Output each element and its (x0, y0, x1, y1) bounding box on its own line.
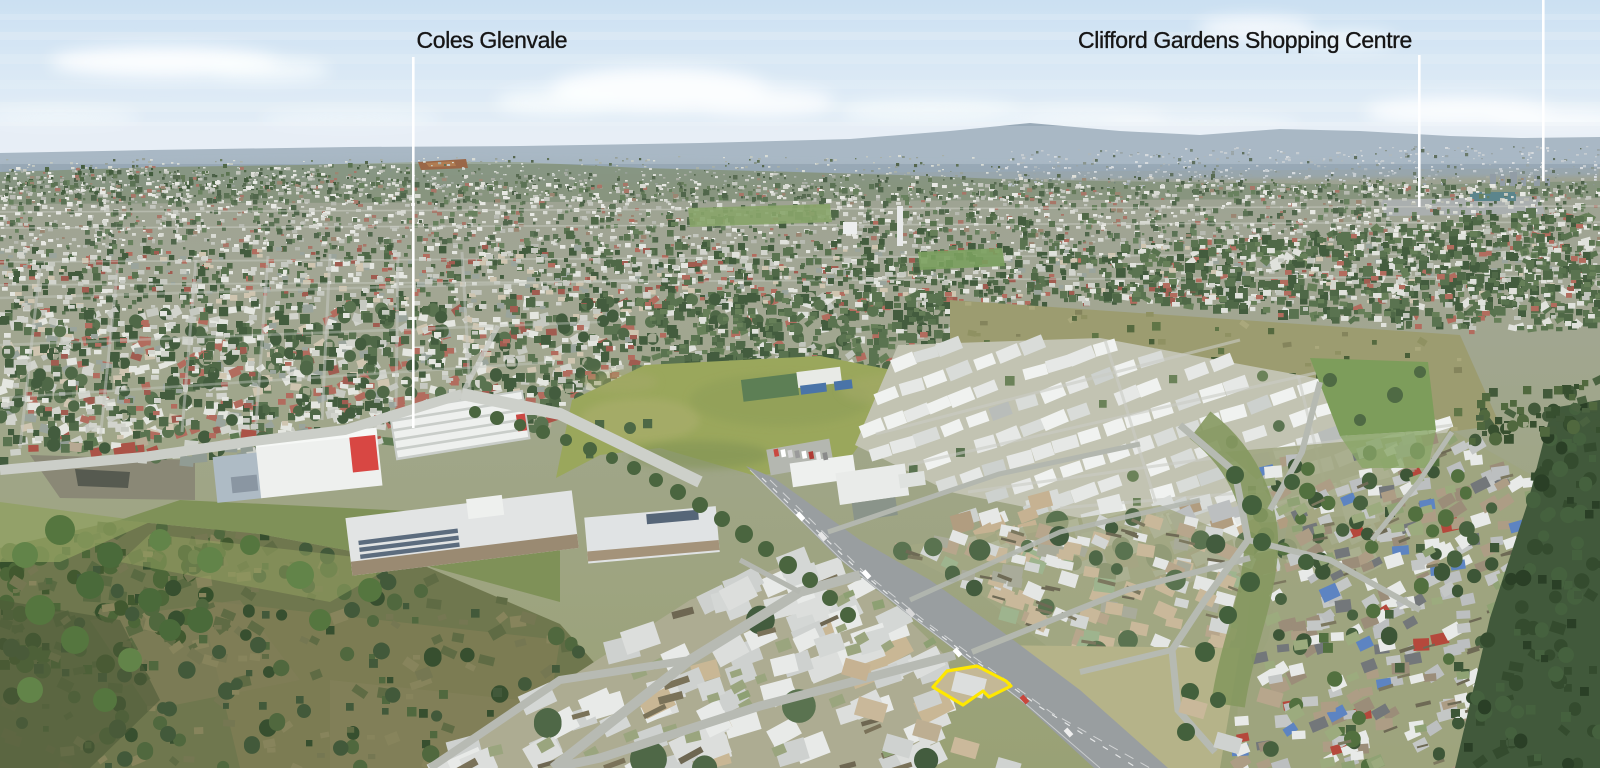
svg-text:Clifford Gardens Shopping Cent: Clifford Gardens Shopping Centre (1078, 27, 1412, 53)
svg-text:Coles Glenvale: Coles Glenvale (417, 27, 568, 53)
